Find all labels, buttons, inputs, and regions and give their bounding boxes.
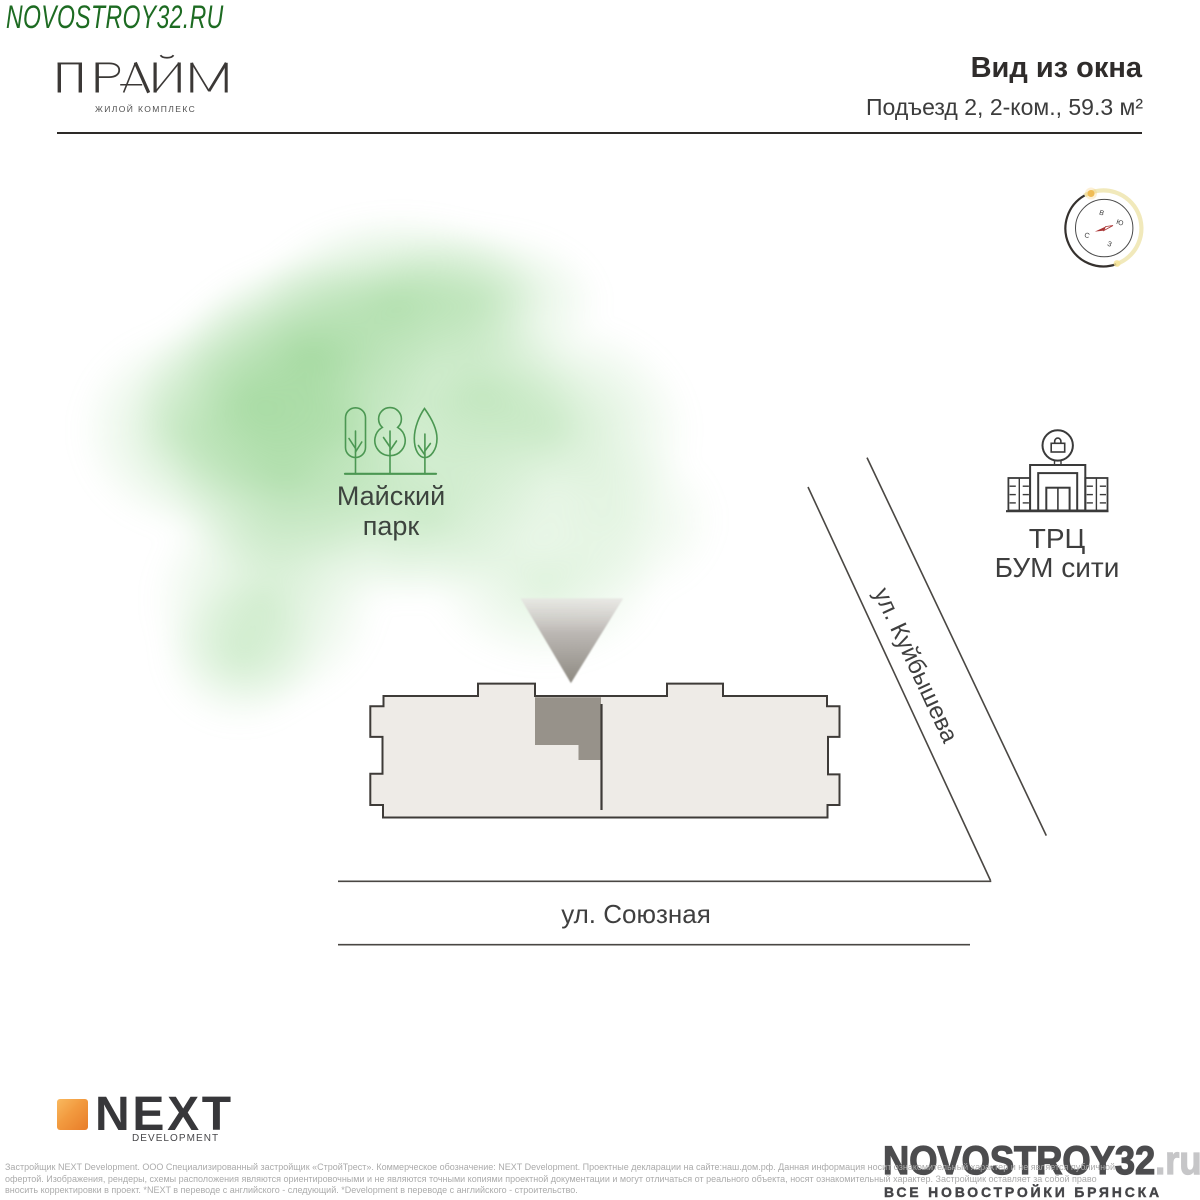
svg-text:ул. Куйбышева: ул. Куйбышева [868,584,964,748]
